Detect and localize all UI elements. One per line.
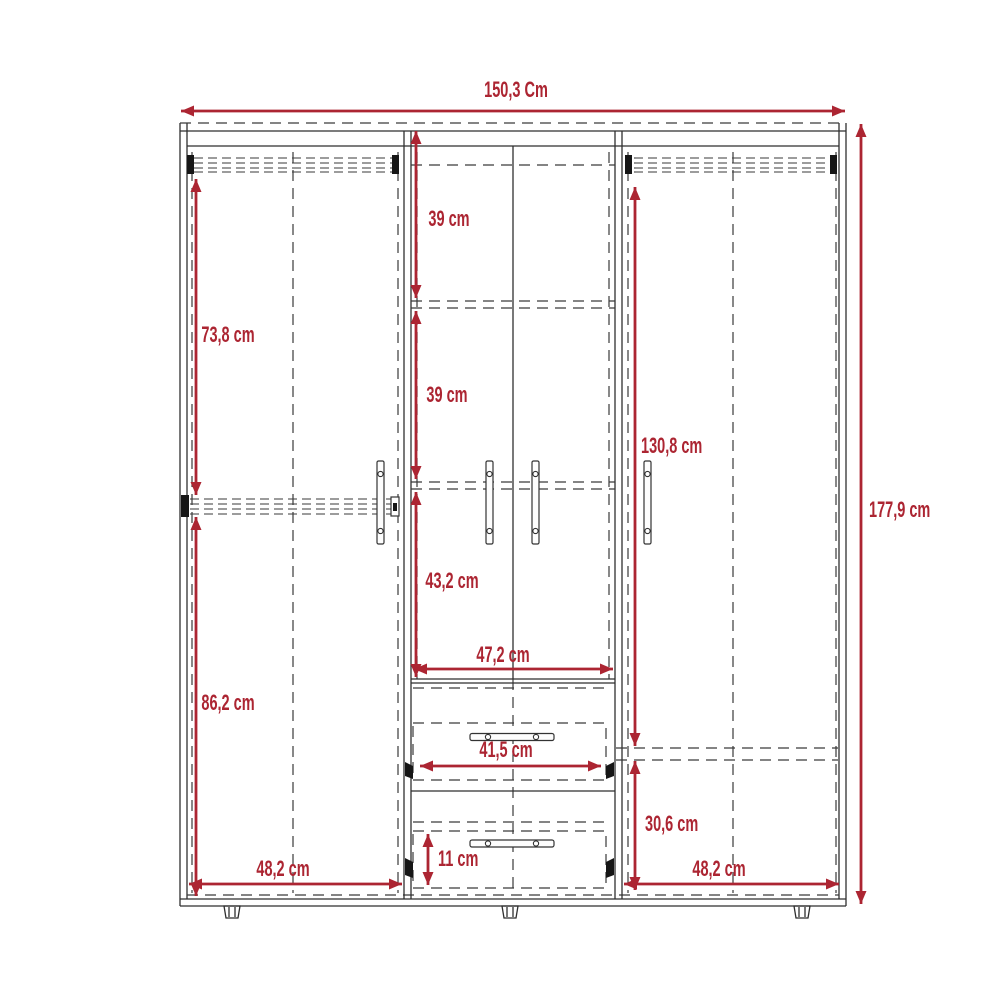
dim-right-lower-height-label: 30,6 cm xyxy=(645,811,698,836)
dim-right-width-label: 48,2 cm xyxy=(692,856,745,881)
dim-drawer-width-label: 41,5 cm xyxy=(479,737,532,762)
dim-center-middle-shelf-label: 39 cm xyxy=(426,382,467,407)
dim-center-inner-width-label: 47,2 cm xyxy=(476,642,529,667)
dim-center-top-shelf: 39 cm xyxy=(416,131,470,298)
dim-center-lower-compartment-label: 43,2 cm xyxy=(425,568,478,593)
dim-right-width: 48,2 cm xyxy=(624,856,839,884)
dim-center-inner-width: 47,2 cm xyxy=(414,642,613,669)
dim-drawer-width: 41,5 cm xyxy=(420,737,601,766)
drawer-bottom xyxy=(405,822,614,888)
dim-center-middle-shelf: 39 cm xyxy=(416,311,468,479)
dim-overall-height-label: 177,9 cm xyxy=(869,497,930,522)
wardrobe-technical-drawing: 150,3 Cm 177,9 cm 73,8 cm 86,2 cm 48,2 c… xyxy=(0,0,1000,1000)
dim-left-upper-height-label: 73,8 cm xyxy=(201,322,254,347)
dim-left-lower-height-label: 86,2 cm xyxy=(201,690,254,715)
door-handles xyxy=(377,461,651,544)
dim-drawer-height-label: 11 cm xyxy=(438,846,478,871)
dim-overall-height: 177,9 cm xyxy=(861,124,930,904)
dim-right-lower-height: 30,6 cm xyxy=(635,761,698,890)
door-outlines xyxy=(192,146,836,893)
hanging-rod-left-middle xyxy=(181,495,399,517)
dim-left-width: 48,2 cm xyxy=(189,856,402,884)
dim-overall-width: 150,3 Cm xyxy=(181,77,845,111)
dim-left-upper-height: 73,8 cm xyxy=(196,179,255,495)
right-shelf xyxy=(616,748,838,760)
dim-overall-width-label: 150,3 Cm xyxy=(484,77,548,102)
hanging-rod-right-top xyxy=(625,155,837,174)
drawing-canvas: 150,3 Cm 177,9 cm 73,8 cm 86,2 cm 48,2 c… xyxy=(0,0,1000,1000)
feet xyxy=(224,906,810,918)
dim-right-upper-height-label: 130,8 cm xyxy=(641,433,702,458)
dim-left-width-label: 48,2 cm xyxy=(256,856,309,881)
dim-left-lower-height: 86,2 cm xyxy=(196,517,255,896)
dim-center-top-shelf-label: 39 cm xyxy=(428,206,469,231)
dim-center-lower-compartment: 43,2 cm xyxy=(416,492,479,677)
